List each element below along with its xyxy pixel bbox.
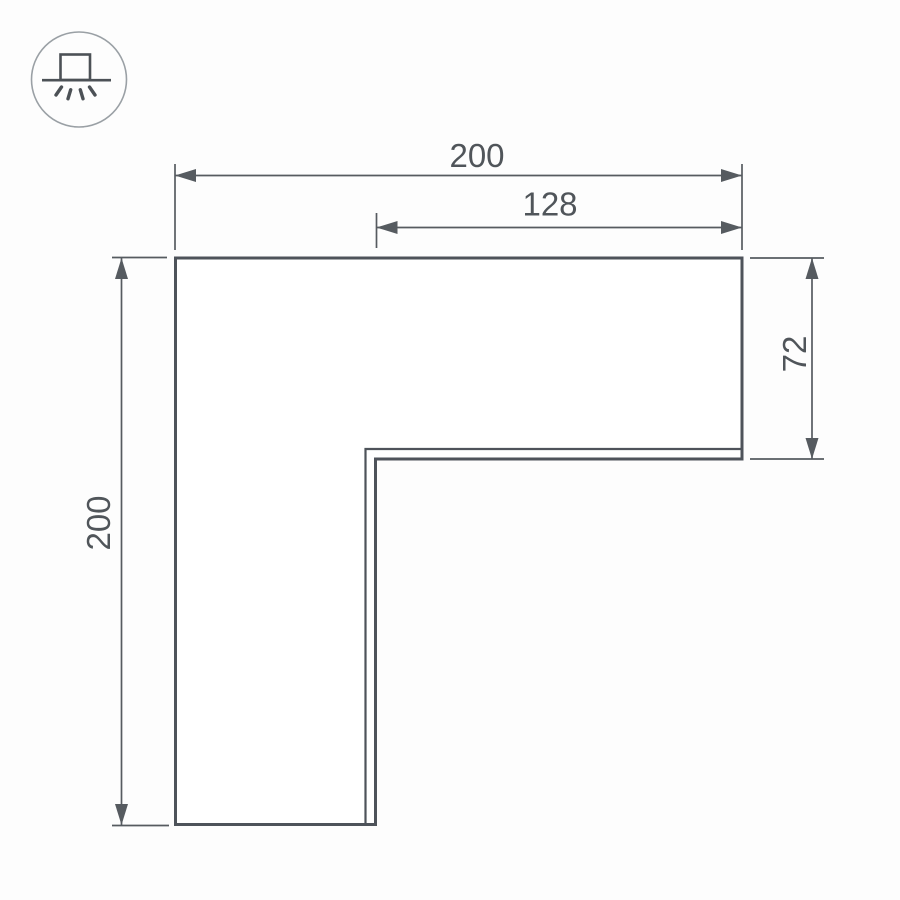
icon-luminaire-body (61, 55, 91, 81)
dimension-arm-height: 72 (750, 258, 824, 459)
profile-outer-contour (176, 258, 743, 825)
dimension-overall-width: 200 (175, 137, 742, 250)
arrow-left-icon (377, 221, 398, 234)
icon-light-ray (68, 90, 71, 99)
profile-corner-drawing: 200 128 72 200 (0, 0, 900, 900)
arrow-right-icon (721, 169, 742, 182)
arrow-down-icon (115, 804, 128, 825)
arrow-up-icon (806, 258, 819, 279)
technical-drawing-page: 200 128 72 200 (0, 0, 900, 900)
dimension-overall-height: 200 (80, 258, 169, 826)
dimension-value: 72 (776, 336, 813, 373)
icon-light-ray (80, 90, 83, 99)
arrow-right-icon (721, 221, 742, 234)
profile-body (176, 258, 743, 825)
profile-inner-step-edge (366, 449, 743, 825)
icon-light-ray (90, 87, 96, 95)
dimension-inner-width: 128 (377, 186, 743, 249)
dimension-value: 128 (522, 186, 577, 223)
dimension-value: 200 (80, 495, 117, 550)
arrow-down-icon (806, 438, 819, 459)
surface-mount-light-icon (32, 32, 127, 127)
icon-light-ray (56, 87, 62, 95)
dimension-value: 200 (449, 137, 504, 174)
arrow-up-icon (115, 258, 128, 279)
arrow-left-icon (175, 169, 196, 182)
